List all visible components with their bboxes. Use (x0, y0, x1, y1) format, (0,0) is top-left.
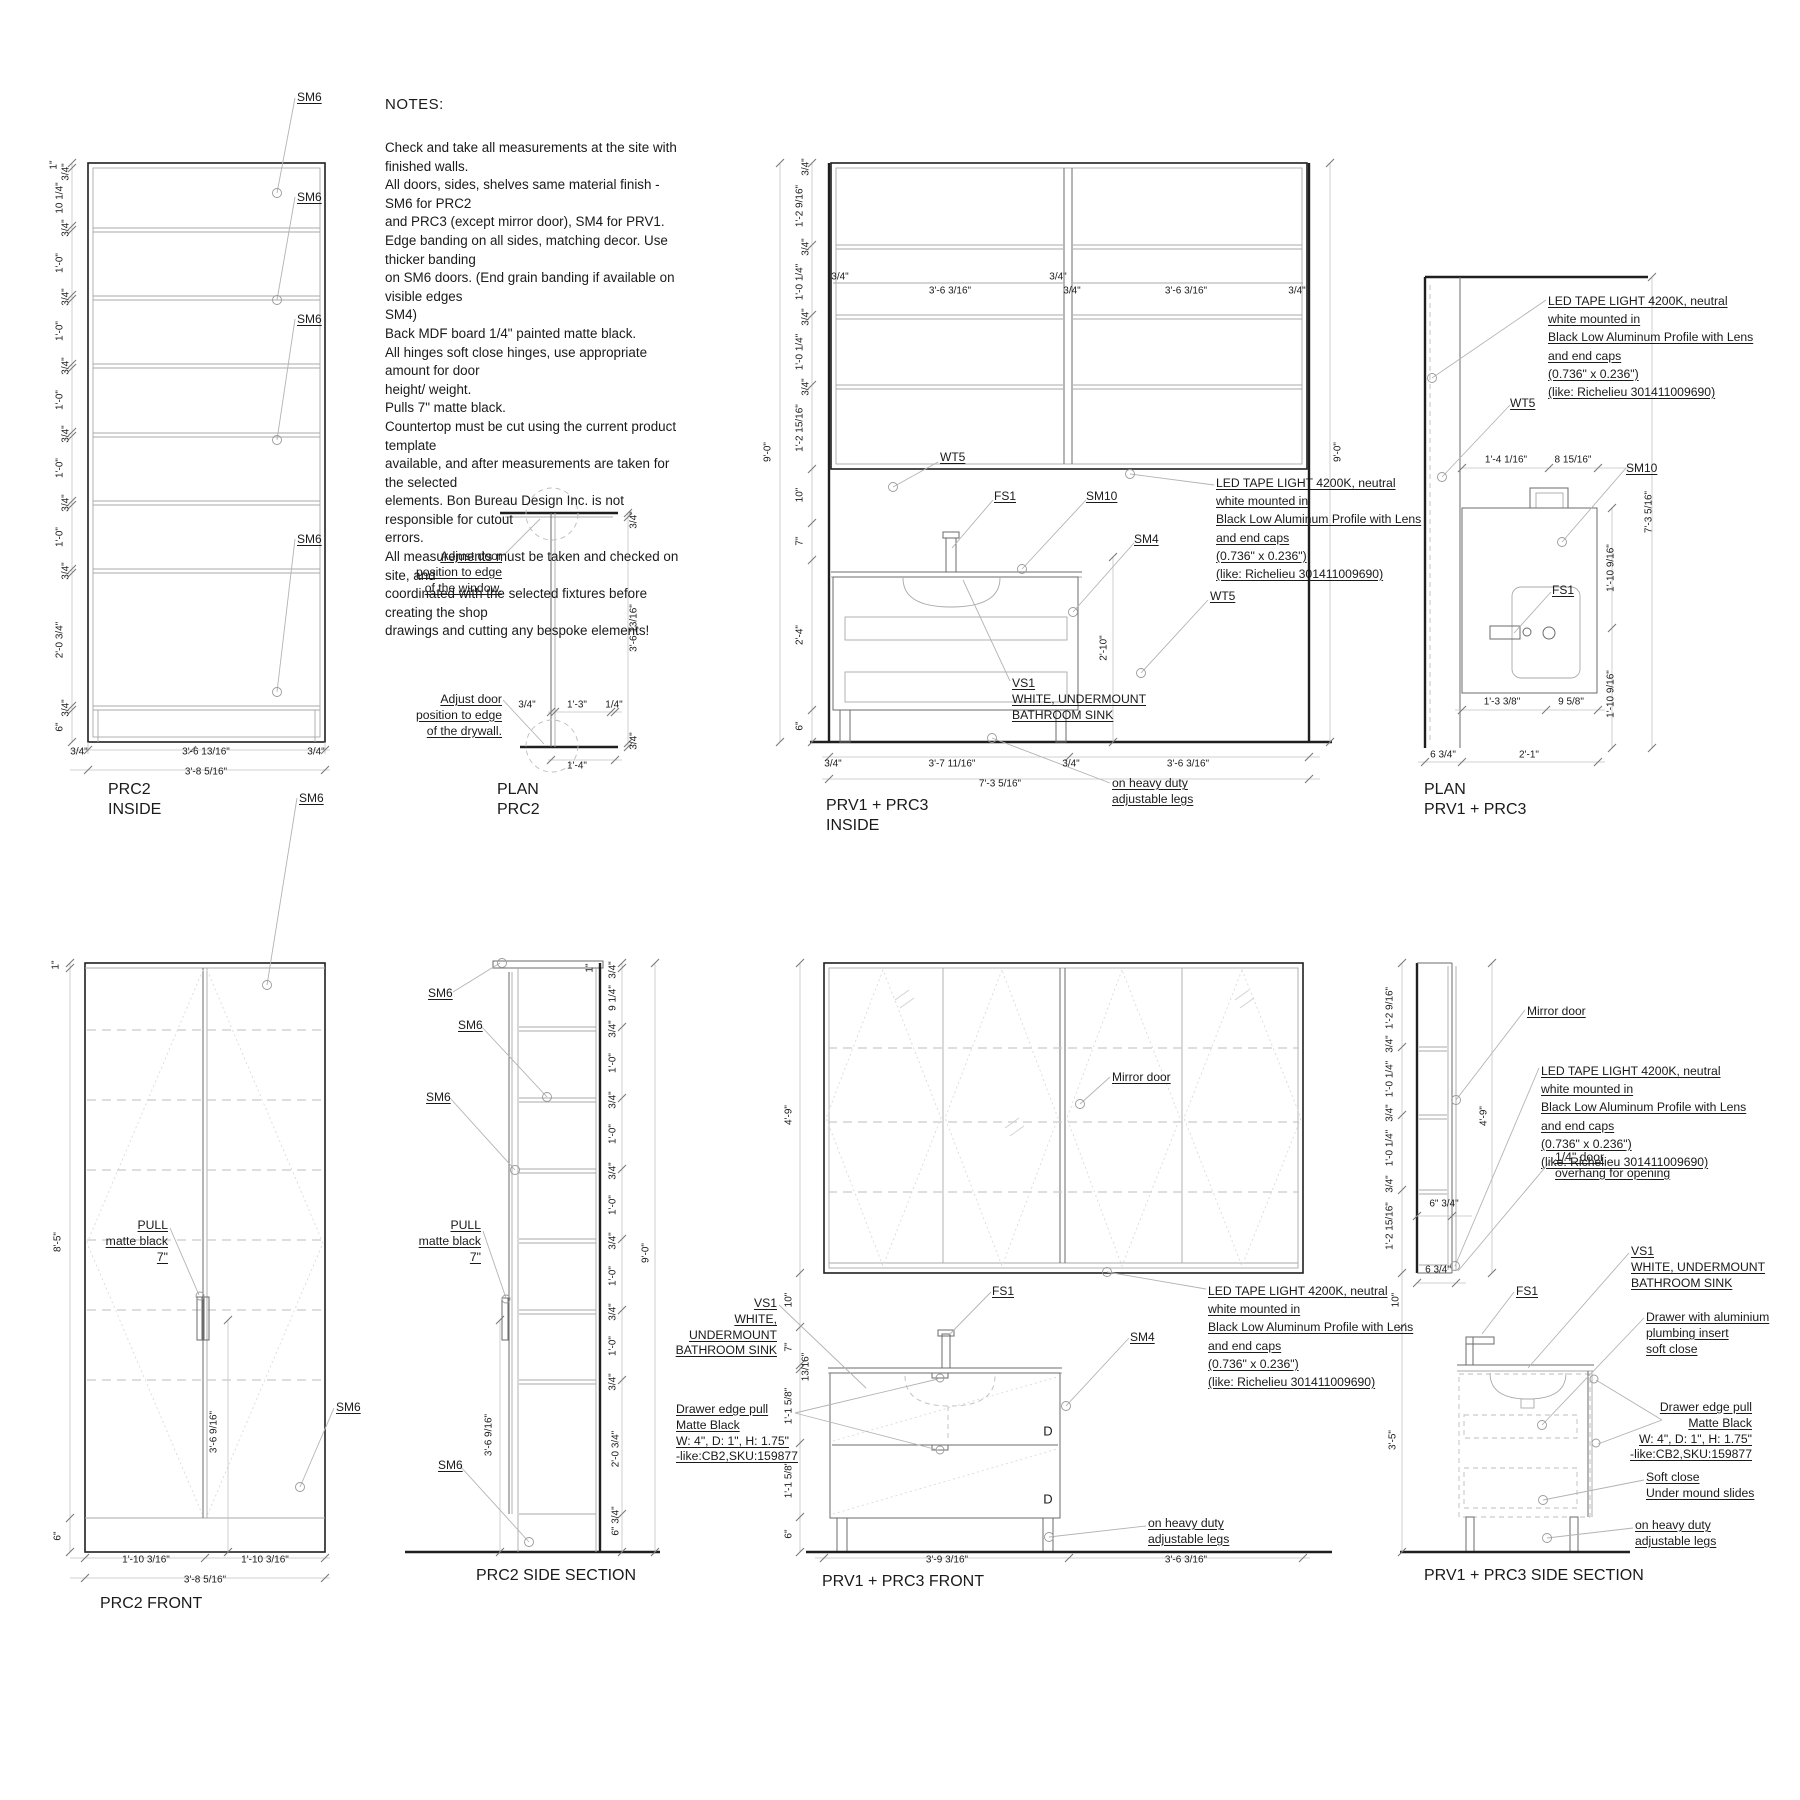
dim-label: 3/4" (800, 158, 813, 175)
callout-fs1: FS1 (992, 1284, 1014, 1300)
dim-label: 1'-2 15/16" (794, 404, 807, 452)
dim-label: 9 5/8" (1558, 696, 1584, 709)
dim-label: 3/4" (60, 163, 73, 180)
dim-label: 1'-0" (607, 1336, 620, 1356)
callout-fs1: FS1 (1552, 583, 1574, 599)
dim-label: 3/4" (1063, 285, 1080, 298)
dim-label: 7'-3 5/16" (1643, 491, 1656, 533)
callout-adjustable-legs: on heavy duty adjustable legs (1148, 1516, 1229, 1548)
dim-label: 3/4" (518, 699, 535, 712)
dim-label: 3'-6 13/16" (628, 604, 641, 652)
callout-vs1: VS1 WHITE, UNDERMOUNT BATHROOM SINK (1631, 1244, 1765, 1291)
prv1-prc3-side-section-drawing (1398, 959, 1662, 1556)
dim-label: 2'-0 3/4" (610, 1431, 623, 1468)
dim-label: 4'-9" (1478, 1106, 1491, 1126)
callout-fs1: FS1 (994, 489, 1016, 505)
dim-label: 2'-0 3/4" (54, 622, 67, 659)
dim-label: 3/4" (60, 288, 73, 305)
dim-label: 1'-0" (607, 1124, 620, 1144)
dim-label: 1'-1 5/8" (783, 1388, 796, 1425)
dim-label: 1'-0" (54, 253, 67, 273)
dim-label: 10" (794, 488, 807, 503)
dim-label: 3/4" (800, 378, 813, 395)
dim-label: 1" (50, 960, 63, 969)
view-title-prv1-side: PRV1 + PRC3 SIDE SECTION (1424, 1566, 1644, 1587)
dim-label: 3/4" (1384, 1175, 1397, 1192)
dim-label: 1'-0" (54, 527, 67, 547)
dim-label: 1'-2 15/16" (1384, 1202, 1397, 1250)
dim-label: 3/4" (1288, 285, 1305, 298)
dim-label: 3/4" (607, 1303, 620, 1320)
callout-adjustable-legs: on heavy duty adjustable legs (1112, 776, 1193, 808)
callout-fs1: FS1 (1516, 1284, 1538, 1300)
dim-label: 3/4" (628, 732, 641, 749)
dim-label: 3/4" (800, 238, 813, 255)
dim-label: 6 3/4" (1430, 749, 1456, 762)
callout-sm4: SM4 (1134, 532, 1159, 548)
callout-adjust-window: Adjust door position to edge of the wind… (416, 549, 502, 596)
callout-door-overhang: 1/4" door overhang for opening (1555, 1150, 1670, 1182)
shop-drawing-sheet: NOTES: Check and take all measurements a… (0, 0, 1800, 1800)
callout-sm10: SM10 (1626, 461, 1657, 477)
dim-label: 1" (584, 963, 597, 972)
dim-label: 9'-0" (762, 442, 775, 462)
view-title-prc2-side: PRC2 SIDE SECTION (476, 1566, 636, 1587)
callout-sm6: SM6 (458, 1018, 483, 1034)
callout-sm6: SM6 (336, 1400, 361, 1416)
view-title-plan-prc2: PLAN PRC2 (497, 780, 540, 820)
dim-label: 3'-5" (1387, 1430, 1400, 1450)
dim-label: 3/4" (1049, 271, 1066, 284)
callout-sm6: SM6 (297, 90, 322, 106)
dim-label: 6" (54, 722, 67, 731)
dim-label: 1'-4" (567, 760, 587, 773)
dim-label: 3'-6 3/16" (1165, 1554, 1207, 1567)
dim-label: 1'-10 3/16" (122, 1554, 170, 1567)
dim-label: 3/4" (607, 1373, 620, 1390)
view-title-prc2-inside: PRC2 INSIDE (108, 780, 161, 820)
dim-label: 3'-6 13/16" (182, 746, 230, 759)
dim-label: 3'-6 9/16" (483, 1414, 496, 1456)
callout-adjust-drywall: Adjust door position to edge of the dryw… (416, 692, 502, 739)
callout-sm6: SM6 (297, 312, 322, 328)
callout-adjustable-legs: on heavy duty adjustable legs (1635, 1518, 1716, 1550)
callout-wt5: WT5 (1510, 396, 1535, 412)
dim-label: 3'-6 3/16" (1165, 285, 1207, 298)
callout-led-note: LED TAPE LIGHT 4200K, neutral white moun… (1216, 474, 1421, 583)
dim-label: 3/4" (60, 425, 73, 442)
dim-label: 3/4" (1062, 758, 1079, 771)
dim-label: 6" (783, 1529, 796, 1538)
dim-label: 1'-10 9/16" (1605, 544, 1618, 592)
dim-label: 3/4" (307, 746, 324, 759)
dim-label: 10" (783, 1293, 796, 1308)
dim-label: 7" (794, 536, 807, 545)
dim-label: 6" (52, 1531, 65, 1540)
callout-sm6: SM6 (438, 1458, 463, 1474)
dim-label: 3/4" (607, 1020, 620, 1037)
callout-vs1: VS1 WHITE, UNDERMOUNT BATHROOM SINK (1012, 676, 1146, 723)
dim-label: 3/4" (607, 1232, 620, 1249)
callout-sm6: SM6 (299, 791, 324, 807)
callout-sm6: SM6 (426, 1090, 451, 1106)
dim-label: 1'-3 3/8" (1484, 696, 1521, 709)
dim-label: 1'-4 1/16" (1485, 454, 1527, 467)
dim-label: 1'-0" (54, 458, 67, 478)
notes-heading: NOTES: (385, 96, 685, 113)
drawer-letter: D (1043, 1424, 1052, 1441)
callout-wt5: WT5 (1210, 589, 1235, 605)
dim-label: 3/4" (60, 494, 73, 511)
callout-led-note: LED TAPE LIGHT 4200K, neutral white moun… (1548, 292, 1753, 401)
dim-label: 1'-1 5/8" (783, 1462, 796, 1499)
view-title-prv1-inside: PRV1 + PRC3 INSIDE (826, 796, 928, 836)
dim-label: 10" (1390, 1293, 1403, 1308)
dim-label: 3'-8 5/16" (184, 1574, 226, 1587)
dim-label: 3/4" (1384, 1104, 1397, 1121)
dim-label: 7" (783, 1342, 796, 1351)
view-title-prv1-front: PRV1 + PRC3 FRONT (822, 1572, 984, 1593)
dim-label: 9 1/4" (607, 985, 620, 1011)
callout-sm4: SM4 (1130, 1330, 1155, 1346)
callout-led-note: LED TAPE LIGHT 4200K, neutral white moun… (1208, 1282, 1413, 1391)
view-title-prc2-front: PRC2 FRONT (100, 1594, 202, 1615)
dim-label: 1'-0 1/4" (1384, 1061, 1397, 1098)
dim-label: 4'-9" (783, 1105, 796, 1125)
callout-pull: PULL matte black 7" (419, 1218, 481, 1265)
dim-label: 1'-0" (607, 1195, 620, 1215)
dim-label: 3/4" (800, 308, 813, 325)
dim-label: 1'-0" (54, 390, 67, 410)
dim-label: 3'-6 3/16" (929, 285, 971, 298)
dim-label: 3/4" (70, 746, 87, 759)
callout-drawer-insert: Drawer with aluminium plumbing insert so… (1646, 1310, 1769, 1357)
dim-label: 3/4" (831, 271, 848, 284)
dim-label: 3/4" (824, 758, 841, 771)
dim-label: 3/4" (607, 1091, 620, 1108)
callout-sm10: SM10 (1086, 489, 1117, 505)
dim-label: 1'-0" (607, 1266, 620, 1286)
dim-label: 6" (794, 721, 807, 730)
callout-drawer-pull: Drawer edge pull Matte Black W: 4", D: 1… (1630, 1400, 1752, 1463)
dim-label: 1'-0 1/4" (794, 264, 807, 301)
callout-sm6: SM6 (428, 986, 453, 1002)
dim-label: 3'-6 9/16" (208, 1411, 221, 1453)
dim-label: 10 1/4" (54, 182, 67, 213)
prc2-front-drawing (66, 798, 334, 1582)
dim-label: 9'-0" (640, 1243, 653, 1263)
dim-label: 3/4" (607, 961, 620, 978)
callout-mirror-door: Mirror door (1112, 1070, 1171, 1086)
dim-label: 1'-10 3/16" (241, 1554, 289, 1567)
dim-label: 3/4" (60, 357, 73, 374)
dim-label: 2'-4" (794, 625, 807, 645)
callout-mirror-door: Mirror door (1527, 1004, 1586, 1020)
dim-label: 6" 3/4" (1429, 1198, 1458, 1211)
callout-wt5: WT5 (940, 450, 965, 466)
dim-label: 3/4" (60, 699, 73, 716)
dim-label: 3'-8 5/16" (185, 766, 227, 779)
callout-pull: PULL matte black 7" (106, 1218, 168, 1265)
dim-label: 3/4" (60, 219, 73, 236)
dim-label: 13/16" (800, 1353, 813, 1382)
dim-label: 9'-0" (1332, 442, 1345, 462)
callout-vs1: VS1 WHITE, UNDERMOUNT BATHROOM SINK (676, 1296, 777, 1359)
dim-label: 1'-0" (54, 321, 67, 341)
dim-label: 1'-0 1/4" (794, 334, 807, 371)
drawing-linework (0, 0, 1800, 1800)
dim-label: 1'-2 9/16" (1384, 987, 1397, 1029)
dim-label: 1'-0 1/4" (1384, 1130, 1397, 1167)
dim-label: 3/4" (628, 511, 641, 528)
dim-label: 1'-0" (607, 1053, 620, 1073)
dim-label: 1/4" (605, 699, 622, 712)
dim-label: 1'-3" (567, 699, 587, 712)
dim-label: 2'-10" (1098, 635, 1111, 660)
drawer-letter: D (1043, 1492, 1052, 1509)
dim-label: 3'-6 3/16" (1167, 758, 1209, 771)
dim-label: 3'-7 11/16" (929, 758, 976, 771)
dim-label: 8 15/16" (1555, 454, 1592, 467)
dim-label: 3/4" (60, 562, 73, 579)
dim-label: 3'-9 3/16" (926, 1554, 968, 1567)
dim-label: 7'-3 5/16" (979, 778, 1021, 791)
callout-sm6: SM6 (297, 532, 322, 548)
dim-label: 6" 3/4" (610, 1506, 623, 1535)
callout-drawer-pull: Drawer edge pull Matte Black W: 4", D: 1… (676, 1402, 798, 1465)
dim-label: 8'-5" (52, 1232, 65, 1252)
dim-label: 1'-10 9/16" (1605, 670, 1618, 718)
dim-label: 6 3/4" (1425, 1264, 1451, 1277)
callout-soft-close: Soft close Under mound slides (1646, 1470, 1754, 1502)
dim-label: 2'-1" (1519, 749, 1539, 762)
dim-label: 3/4" (1384, 1035, 1397, 1052)
dim-label: 1'-2 9/16" (794, 185, 807, 227)
prc2-inside-drawing (68, 98, 330, 774)
callout-sm6: SM6 (297, 190, 322, 206)
view-title-plan-prv1: PLAN PRV1 + PRC3 (1424, 780, 1526, 820)
prv1-prc3-front-drawing (779, 959, 1332, 1562)
dim-label: 3/4" (607, 1162, 620, 1179)
